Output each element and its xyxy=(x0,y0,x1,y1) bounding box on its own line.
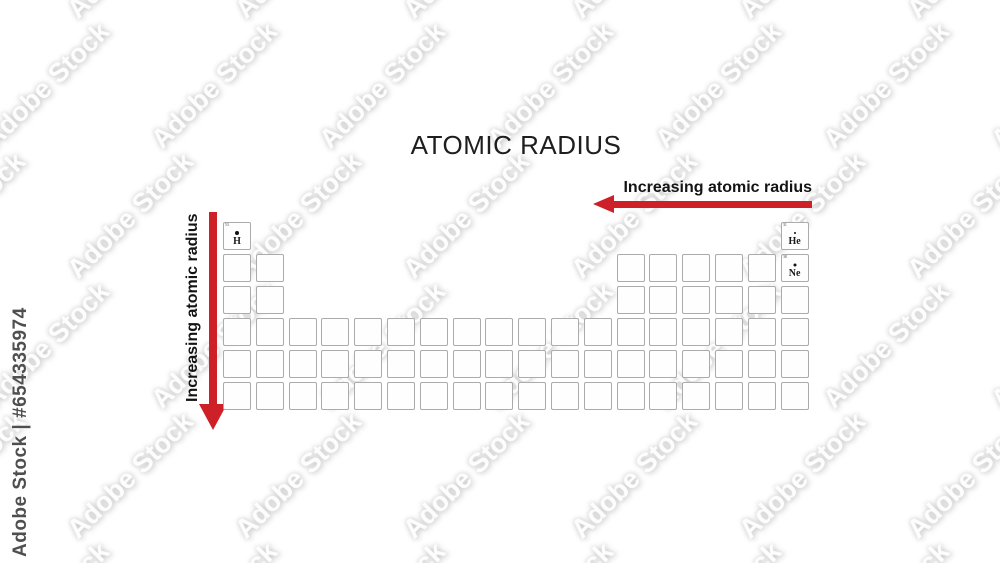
table-cell xyxy=(617,286,645,314)
table-cell xyxy=(715,286,743,314)
atomic-radius-value: 31 xyxy=(783,223,787,227)
table-cell xyxy=(289,382,317,410)
table-cell xyxy=(321,382,349,410)
table-cell xyxy=(682,318,710,346)
table-cell xyxy=(781,350,809,378)
table-cell xyxy=(781,382,809,410)
table-cell xyxy=(584,382,612,410)
table-cell xyxy=(715,318,743,346)
table-cell xyxy=(649,286,677,314)
table-cell xyxy=(387,318,415,346)
table-cell xyxy=(354,350,382,378)
table-cell xyxy=(682,254,710,282)
table-cell xyxy=(617,318,645,346)
table-cell xyxy=(617,350,645,378)
table-cell xyxy=(649,254,677,282)
table-cell xyxy=(223,382,251,410)
table-cell xyxy=(256,318,284,346)
table-cell xyxy=(223,286,251,314)
table-cell xyxy=(781,286,809,314)
element-cell-ne: 38Ne xyxy=(781,254,809,282)
table-cell xyxy=(321,318,349,346)
element-symbol: He xyxy=(782,237,808,247)
table-cell xyxy=(485,382,513,410)
table-cell xyxy=(781,318,809,346)
table-cell xyxy=(748,286,776,314)
table-cell xyxy=(551,318,579,346)
table-cell xyxy=(387,382,415,410)
periodic-table: 53H31He38Ne xyxy=(0,0,1000,563)
atomic-radius-value: 53 xyxy=(225,223,229,227)
table-cell xyxy=(584,350,612,378)
table-cell xyxy=(649,350,677,378)
table-cell xyxy=(748,254,776,282)
element-symbol: H xyxy=(224,237,250,247)
diagram-canvas: Adobe StockAdobe StockAdobe StockAdobe S… xyxy=(0,0,1000,563)
atomic-radius-value: 38 xyxy=(783,255,787,259)
table-cell xyxy=(518,350,546,378)
atom-size-dot xyxy=(793,263,796,266)
table-cell xyxy=(256,286,284,314)
element-symbol: Ne xyxy=(782,269,808,279)
element-cell-h: 53H xyxy=(223,222,251,250)
table-cell xyxy=(223,318,251,346)
table-cell xyxy=(453,350,481,378)
table-cell xyxy=(420,382,448,410)
table-cell xyxy=(256,382,284,410)
atom-size-dot xyxy=(235,231,239,235)
table-cell xyxy=(256,254,284,282)
table-cell xyxy=(256,350,284,378)
table-cell xyxy=(420,350,448,378)
table-cell xyxy=(485,350,513,378)
element-cell-he: 31He xyxy=(781,222,809,250)
table-cell xyxy=(649,382,677,410)
table-cell xyxy=(485,318,513,346)
table-cell xyxy=(551,382,579,410)
table-cell xyxy=(321,350,349,378)
table-cell xyxy=(354,382,382,410)
table-cell xyxy=(387,350,415,378)
table-cell xyxy=(715,254,743,282)
table-cell xyxy=(453,318,481,346)
table-cell xyxy=(649,318,677,346)
table-cell xyxy=(715,382,743,410)
table-cell xyxy=(682,286,710,314)
table-cell xyxy=(354,318,382,346)
table-cell xyxy=(617,254,645,282)
table-cell xyxy=(223,350,251,378)
table-cell xyxy=(748,318,776,346)
table-cell xyxy=(289,318,317,346)
atom-size-dot xyxy=(794,232,796,234)
table-cell xyxy=(289,350,317,378)
table-cell xyxy=(682,382,710,410)
table-cell xyxy=(518,382,546,410)
table-cell xyxy=(617,382,645,410)
table-cell xyxy=(584,318,612,346)
table-cell xyxy=(223,254,251,282)
table-cell xyxy=(551,350,579,378)
table-cell xyxy=(453,382,481,410)
table-cell xyxy=(715,350,743,378)
table-cell xyxy=(682,350,710,378)
table-cell xyxy=(748,350,776,378)
table-cell xyxy=(518,318,546,346)
table-cell xyxy=(420,318,448,346)
table-cell xyxy=(748,382,776,410)
